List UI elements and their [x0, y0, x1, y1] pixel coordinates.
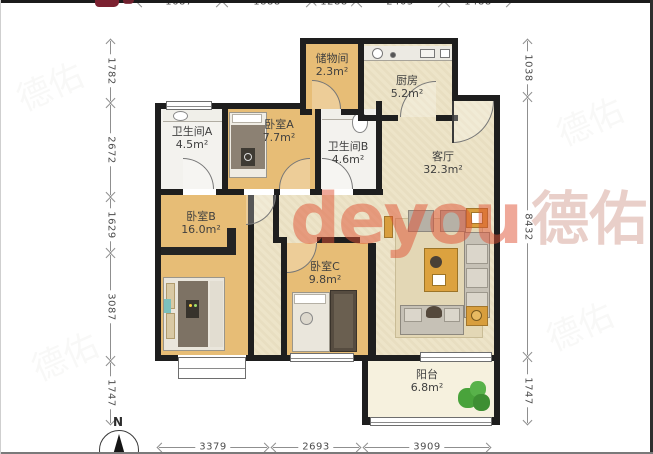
corridor-floor	[254, 243, 281, 355]
bedroom-c-pillow	[294, 294, 326, 304]
cooktop-icon	[440, 49, 450, 58]
bedroom-b-pillow	[166, 313, 175, 339]
dim-left-0: 1782	[104, 40, 117, 102]
coffee-table-tray-icon	[432, 274, 446, 286]
wall	[300, 38, 458, 44]
wall	[368, 243, 376, 361]
coffee-table-bowl-icon	[430, 256, 442, 268]
wall	[492, 417, 500, 425]
room-name: 阳台	[396, 368, 458, 381]
north-arrow-icon	[113, 434, 125, 454]
wall	[155, 189, 183, 195]
balcony-slider-window	[420, 352, 492, 362]
room-label-bedroom-a: 卧室A 7.7m²	[250, 118, 308, 145]
wall	[452, 44, 458, 101]
room-label-storage: 储物间 2.3m²	[302, 52, 362, 79]
wall	[494, 101, 500, 361]
dim-left-3: 3087	[104, 254, 117, 360]
room-name: 卧室C	[295, 260, 355, 273]
sofa-cushion	[444, 308, 460, 322]
wall	[155, 109, 161, 361]
balcony-window	[370, 417, 492, 426]
closet-wall	[161, 247, 236, 255]
wall	[358, 115, 398, 121]
wall	[310, 189, 322, 195]
room-area: 16.0m²	[171, 223, 231, 236]
room-area: 9.8m²	[295, 273, 355, 286]
wardrobe-panel	[334, 294, 353, 348]
bath-a-sink-icon	[173, 111, 188, 121]
stove-icon	[420, 49, 435, 58]
bath-a-counter	[163, 109, 222, 122]
side-table-lamp-icon	[471, 212, 483, 224]
window	[290, 353, 354, 362]
room-name: 卧室A	[250, 118, 308, 131]
kitchen-sink-icon	[372, 48, 383, 59]
sofa-cushion	[404, 308, 422, 322]
dresser-knob-icon	[244, 153, 252, 161]
wall	[317, 237, 360, 243]
clipped-logo-fragment	[95, 0, 119, 7]
throw-pillow	[426, 306, 442, 318]
wall	[368, 355, 420, 361]
wall	[494, 361, 500, 419]
bedroom-b-runner	[186, 300, 199, 318]
room-name: 卫生间A	[163, 125, 221, 138]
bed-decor-icon	[300, 312, 313, 325]
left-border	[0, 0, 1, 454]
room-area: 7.7m²	[250, 131, 308, 144]
room-label-bedroom-b: 卧室B 16.0m²	[171, 210, 231, 237]
dim-right-0: 1038	[521, 40, 534, 96]
faint-watermark: 德佑	[538, 288, 620, 360]
faint-watermark: 德佑	[8, 48, 90, 120]
entry-door-leaf	[452, 101, 454, 143]
room-name: 客厅	[411, 150, 475, 163]
room-name: 厨房	[376, 74, 438, 87]
dim-left-2: 1629	[104, 198, 117, 252]
room-name: 卧室B	[171, 210, 231, 223]
wall	[246, 355, 290, 361]
bedroom-b-accent-pillow	[164, 299, 171, 313]
room-label-balcony: 阳台 6.8m²	[396, 368, 458, 395]
tv-stand	[384, 216, 393, 238]
room-area: 6.8m²	[396, 381, 458, 394]
bay-window	[178, 357, 246, 379]
sofa-cushion	[466, 244, 488, 264]
room-area: 4.5m²	[163, 138, 221, 151]
room-label-kitchen: 厨房 5.2m²	[376, 74, 438, 101]
floorplan-image: 德佑 德佑 德佑 德佑	[0, 0, 653, 454]
faint-watermark: 德佑	[548, 83, 630, 155]
armchair	[408, 210, 434, 232]
clipped-logo-fragment	[123, 0, 134, 4]
runner-dot-icon	[189, 304, 192, 307]
room-area: 32.3m²	[411, 163, 475, 176]
faucet-icon	[390, 52, 396, 58]
window	[166, 101, 212, 110]
wall	[300, 109, 312, 115]
room-name: 储物间	[302, 52, 362, 65]
wall	[222, 109, 228, 189]
watermark-cjk: 德佑	[531, 190, 647, 248]
bedroom-b-bed-edge	[210, 281, 223, 347]
armchair	[440, 210, 466, 232]
dim-right-1: 8432	[521, 98, 534, 356]
room-label-bedroom-c: 卧室C 9.8m²	[295, 260, 355, 287]
room-label-living: 客厅 32.3m²	[411, 150, 475, 177]
room-label-bath-b: 卫生间B 4.6m²	[319, 140, 377, 167]
sofa-cushion	[466, 268, 488, 288]
plant-icon	[473, 394, 490, 411]
room-name: 卫生间B	[319, 140, 377, 153]
runner-dot-icon	[194, 304, 197, 307]
wall	[353, 189, 383, 195]
wall	[362, 361, 368, 417]
wall	[216, 189, 244, 195]
room-area: 2.3m²	[302, 65, 362, 78]
dim-right-2: 1747	[521, 358, 534, 424]
side-table-plate-icon	[471, 310, 482, 321]
north-label: N	[113, 415, 123, 429]
room-area: 4.6m²	[319, 153, 377, 166]
faint-watermark: 德佑	[23, 318, 105, 390]
room-label-bath-a: 卫生间A 4.5m²	[163, 125, 221, 152]
wall	[161, 355, 178, 361]
room-area: 5.2m²	[376, 87, 438, 100]
dim-left-1: 2672	[104, 104, 117, 196]
wall	[362, 417, 370, 425]
